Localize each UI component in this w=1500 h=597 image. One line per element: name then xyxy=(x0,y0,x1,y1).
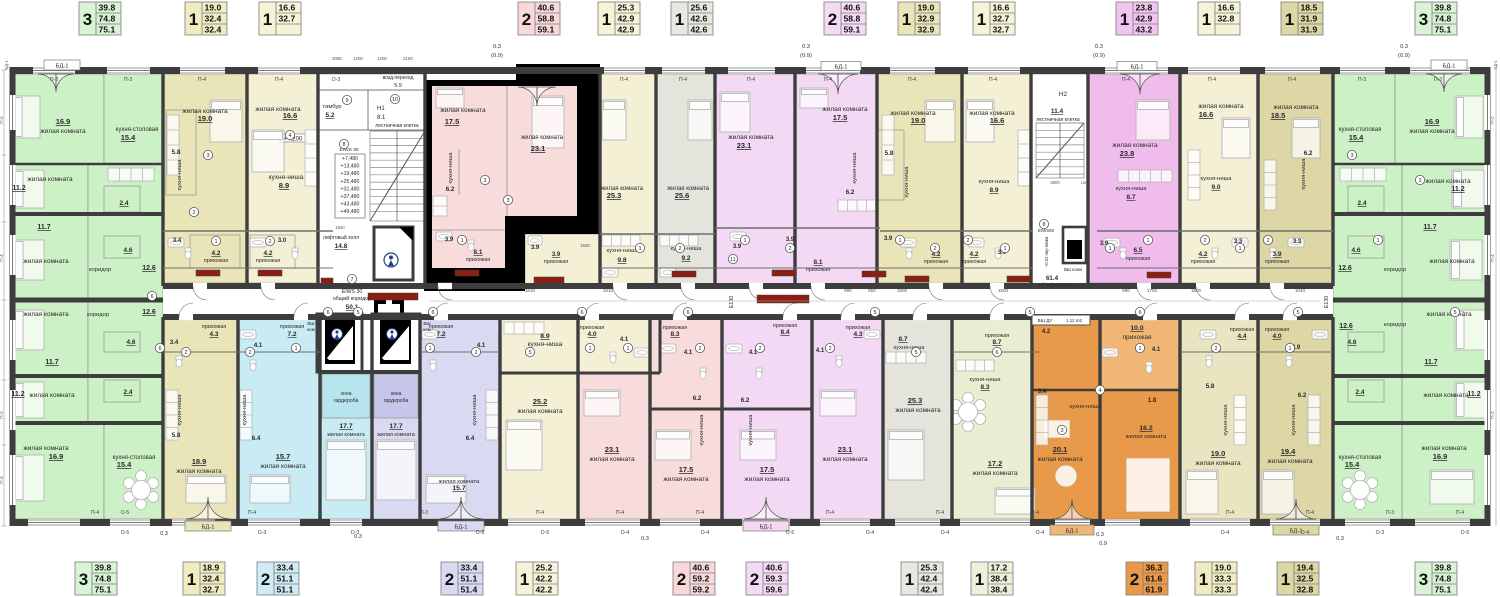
svg-text:32.8: 32.8 xyxy=(1297,585,1314,595)
svg-text:жилая комната: жилая комната xyxy=(260,463,306,470)
svg-text:кухня-ниша: кухня-ниша xyxy=(1301,158,1307,190)
svg-text:О-4: О-4 xyxy=(1301,530,1310,536)
svg-text:прихожая: прихожая xyxy=(1191,259,1216,265)
svg-text:2150: 2150 xyxy=(403,56,413,61)
svg-text:6.2: 6.2 xyxy=(1304,150,1313,157)
svg-text:2.4: 2.4 xyxy=(1355,389,1364,396)
svg-text:15.7: 15.7 xyxy=(276,452,291,461)
svg-text:жилая комната: жилая комната xyxy=(822,456,868,463)
svg-text:П-2: П-2 xyxy=(0,411,4,419)
svg-text:1: 1 xyxy=(1108,246,1111,252)
svg-text:4.6: 4.6 xyxy=(123,247,132,254)
svg-text:1: 1 xyxy=(1146,238,1149,244)
svg-text:2.4: 2.4 xyxy=(119,200,128,207)
svg-text:11.2: 11.2 xyxy=(1467,391,1480,398)
svg-text:3: 3 xyxy=(79,570,88,589)
svg-text:жилая комната: жилая комната xyxy=(29,392,75,399)
svg-text:31.9: 31.9 xyxy=(1301,25,1318,35)
svg-text:59.2: 59.2 xyxy=(693,574,710,584)
svg-text:6.2: 6.2 xyxy=(446,186,455,193)
svg-text:6.2: 6.2 xyxy=(846,189,855,196)
svg-text:П-4: П-4 xyxy=(1490,254,1495,262)
svg-text:жилая комната: жилая комната xyxy=(1426,311,1472,318)
svg-text:3.4: 3.4 xyxy=(173,238,182,244)
svg-text:П-3: П-3 xyxy=(50,77,58,83)
svg-text:П-4: П-4 xyxy=(536,510,544,516)
svg-text:П-3: П-3 xyxy=(1358,77,1366,83)
svg-text:БД-1: БД-1 xyxy=(835,64,848,70)
svg-text:42.6: 42.6 xyxy=(691,14,708,24)
svg-text:75.1: 75.1 xyxy=(1435,585,1452,595)
svg-text:6: 6 xyxy=(150,294,153,300)
svg-text:0.3: 0.3 xyxy=(1400,44,1408,50)
svg-text:32.4: 32.4 xyxy=(205,14,222,24)
svg-text:23.1: 23.1 xyxy=(838,445,853,454)
svg-text:П-4: П-4 xyxy=(989,77,997,83)
svg-text:1: 1 xyxy=(1202,10,1211,29)
svg-text:1: 1 xyxy=(428,346,431,352)
svg-text:кухня-ниша: кухня-ниша xyxy=(242,394,248,426)
svg-text:51.1: 51.1 xyxy=(461,574,478,584)
svg-text:5: 5 xyxy=(914,350,917,356)
svg-text:3.9: 3.9 xyxy=(733,244,742,250)
svg-text:П-4: П-4 xyxy=(1226,510,1234,516)
svg-text:коридор: коридор xyxy=(87,312,109,318)
svg-text:33.4: 33.4 xyxy=(277,563,294,573)
svg-text:6: 6 xyxy=(686,310,689,316)
svg-text:19.4: 19.4 xyxy=(1281,447,1296,456)
svg-text:1040: 1040 xyxy=(1295,288,1306,293)
svg-text:П-4: П-4 xyxy=(248,510,256,516)
svg-text:42.4: 42.4 xyxy=(921,574,938,584)
svg-text:П-3: П-3 xyxy=(1434,77,1442,83)
svg-text:1800: 1800 xyxy=(1191,288,1202,293)
svg-text:8.1: 8.1 xyxy=(813,259,822,266)
svg-text:42.2: 42.2 xyxy=(536,585,553,595)
svg-text:лестничная клетка: лестничная клетка xyxy=(375,123,419,129)
svg-text:16.6: 16.6 xyxy=(993,3,1010,13)
svg-text:14.8: 14.8 xyxy=(335,243,348,250)
svg-text:3: 3 xyxy=(506,198,509,204)
svg-text:1: 1 xyxy=(743,238,746,244)
svg-text:6.2: 6.2 xyxy=(1298,392,1307,399)
svg-text:+19,480: +19,480 xyxy=(341,171,360,177)
svg-text:жилая комната: жилая комната xyxy=(1112,142,1158,149)
svg-text:4.0: 4.0 xyxy=(1272,333,1281,340)
svg-text:3.9: 3.9 xyxy=(552,252,561,258)
svg-text:жилая комната: жилая комната xyxy=(377,432,415,438)
svg-text:6: 6 xyxy=(1138,310,1141,316)
svg-text:прихожая: прихожая xyxy=(256,258,281,264)
svg-text:О-4: О-4 xyxy=(866,530,875,536)
svg-text:2: 2 xyxy=(966,238,969,244)
svg-text:О-4: О-4 xyxy=(621,530,630,536)
svg-text:О-4: О-4 xyxy=(701,530,710,536)
svg-text:1: 1 xyxy=(588,346,591,352)
svg-text:4.6: 4.6 xyxy=(1347,339,1356,346)
svg-text:4.6: 4.6 xyxy=(1351,247,1360,254)
svg-text:П-4: П-4 xyxy=(696,510,704,516)
svg-text:38.4: 38.4 xyxy=(991,574,1008,584)
svg-text:2: 2 xyxy=(1130,570,1139,589)
svg-text:кухня-ниша: кухня-ниша xyxy=(904,166,910,198)
svg-text:23.8: 23.8 xyxy=(1136,3,1153,13)
svg-text:1.12 m2: 1.12 m2 xyxy=(1066,318,1082,323)
svg-text:1: 1 xyxy=(675,10,684,29)
svg-text:кухня-ниша: кухня-ниша xyxy=(748,414,754,446)
svg-text:О-5: О-5 xyxy=(121,510,130,516)
svg-text:О-5: О-5 xyxy=(121,530,130,536)
svg-text:жилая комната: жилая комната xyxy=(667,186,709,192)
svg-text:32.9: 32.9 xyxy=(918,14,935,24)
svg-text:15.4: 15.4 xyxy=(1349,133,1364,142)
svg-text:П-3: П-3 xyxy=(124,77,132,83)
svg-text:П-2: П-2 xyxy=(1490,116,1495,124)
svg-text:5: 5 xyxy=(1028,310,1031,316)
svg-text:850: 850 xyxy=(868,288,876,293)
svg-text:БД-1: БД-1 xyxy=(455,524,468,530)
svg-text:О-4: О-4 xyxy=(1036,530,1045,536)
svg-text:74.8: 74.8 xyxy=(1435,14,1452,24)
svg-text:51.1: 51.1 xyxy=(277,574,294,584)
svg-text:3: 3 xyxy=(1350,153,1353,159)
svg-text:8.9: 8.9 xyxy=(989,187,998,194)
svg-text:БД-1: БД-1 xyxy=(1443,63,1456,69)
svg-text:кухня-ниша: кухня-ниша xyxy=(970,377,1002,383)
svg-text:жилая комната: жилая комната xyxy=(744,476,790,483)
svg-text:32.5: 32.5 xyxy=(1297,574,1314,584)
svg-text:17.2: 17.2 xyxy=(991,563,1008,573)
svg-text:4.1: 4.1 xyxy=(816,348,825,354)
svg-text:59.2: 59.2 xyxy=(693,585,710,595)
svg-text:39.8: 39.8 xyxy=(1435,563,1452,573)
svg-text:1: 1 xyxy=(1238,246,1241,252)
svg-text:+13,480: +13,480 xyxy=(341,164,360,170)
svg-text:жилая комната: жилая комната xyxy=(589,456,635,463)
svg-text:прихожая: прихожая xyxy=(806,267,831,273)
svg-text:51.4: 51.4 xyxy=(461,585,478,595)
svg-text:0.3: 0.3 xyxy=(1336,536,1344,542)
svg-text:кухня-ниша: кухня-ниша xyxy=(177,159,183,191)
svg-text:4.2: 4.2 xyxy=(263,250,272,257)
svg-text:гардероба: гардероба xyxy=(384,398,409,404)
svg-text:жилая комната: жилая комната xyxy=(40,128,86,135)
svg-text:16.9: 16.9 xyxy=(56,117,71,126)
svg-text:61.4: 61.4 xyxy=(1046,275,1059,282)
svg-text:40.6: 40.6 xyxy=(693,563,710,573)
svg-text:3.9: 3.9 xyxy=(531,245,540,251)
svg-text:жилая комната: жилая комната xyxy=(23,445,69,452)
svg-text:лифтовый холл: лифтовый холл xyxy=(323,234,359,241)
svg-text:15.4: 15.4 xyxy=(1345,460,1360,469)
svg-text:БД-1: БД-1 xyxy=(1131,64,1144,70)
svg-text:8.9: 8.9 xyxy=(279,181,289,190)
svg-text:1750: 1750 xyxy=(1147,288,1158,293)
svg-text:74.8: 74.8 xyxy=(1435,574,1452,584)
svg-text:1200: 1200 xyxy=(353,56,363,61)
svg-text:8.3: 8.3 xyxy=(670,331,679,338)
svg-text:2: 2 xyxy=(248,350,251,356)
svg-text:жилая комната: жилая комната xyxy=(601,186,643,192)
svg-text:прихожая: прихожая xyxy=(924,259,949,265)
svg-text:180: 180 xyxy=(1081,180,1088,185)
svg-text:17.5: 17.5 xyxy=(833,113,848,122)
svg-text:7.2: 7.2 xyxy=(287,331,296,338)
svg-text:12.6: 12.6 xyxy=(1339,323,1353,330)
svg-text:6.4: 6.4 xyxy=(252,435,261,442)
svg-text:4.2: 4.2 xyxy=(211,250,220,257)
svg-text:жилая комната: жилая комната xyxy=(521,135,563,141)
svg-text:О-4: О-4 xyxy=(941,530,950,536)
svg-text:16.2: 16.2 xyxy=(1139,425,1152,432)
svg-text:Н1: Н1 xyxy=(377,106,385,112)
svg-text:1: 1 xyxy=(460,238,463,244)
svg-text:жилая комната: жилая комната xyxy=(663,476,709,483)
svg-text:3: 3 xyxy=(206,153,209,159)
svg-text:жилая комната: жилая комната xyxy=(176,468,222,475)
svg-text:прихожая: прихожая xyxy=(280,324,305,330)
svg-text:коридор: коридор xyxy=(1384,322,1406,328)
svg-text:75.1: 75.1 xyxy=(95,585,112,595)
svg-text:3.9: 3.9 xyxy=(884,236,893,242)
svg-text:11: 11 xyxy=(730,257,736,263)
svg-text:0.3: 0.3 xyxy=(493,44,501,50)
svg-text:прихожая: прихожая xyxy=(544,259,569,265)
svg-text:жилая комната: жилая комната xyxy=(1421,445,1467,452)
svg-text:9.4: 9.4 xyxy=(1038,388,1047,395)
svg-text:42.2: 42.2 xyxy=(536,574,553,584)
svg-text:3.0: 3.0 xyxy=(278,238,287,244)
svg-text:25.2: 25.2 xyxy=(536,563,553,573)
svg-text:2600: 2600 xyxy=(1050,180,1060,185)
svg-text:0.3: 0.3 xyxy=(1095,44,1103,50)
svg-text:4: 4 xyxy=(1098,388,1101,394)
svg-text:О-3: О-3 xyxy=(258,530,267,536)
svg-text:О-3: О-3 xyxy=(1376,530,1385,536)
svg-text:8.7: 8.7 xyxy=(992,339,1001,346)
svg-text:кухня-ниша: кухня-ниша xyxy=(177,394,183,426)
svg-text:5.8: 5.8 xyxy=(884,150,893,157)
svg-text:БД-1: БД-1 xyxy=(56,63,69,69)
svg-text:16.9: 16.9 xyxy=(1433,452,1448,461)
svg-text:4.4: 4.4 xyxy=(1237,333,1246,340)
svg-text:18.5: 18.5 xyxy=(1301,3,1318,13)
svg-text:П-4: П-4 xyxy=(679,77,687,83)
svg-text:ВШ: ВШ xyxy=(307,321,314,326)
svg-text:общий коридор: общий коридор xyxy=(333,295,372,302)
svg-text:31.9: 31.9 xyxy=(1301,14,1318,24)
svg-text:2: 2 xyxy=(828,346,831,352)
svg-text:6.2: 6.2 xyxy=(741,397,750,404)
svg-text:П-4: П-4 xyxy=(936,510,944,516)
svg-text:+43,480: +43,480 xyxy=(341,202,360,208)
svg-text:1: 1 xyxy=(638,246,641,252)
svg-text:6.2: 6.2 xyxy=(693,395,702,402)
svg-text:жилая комната: жилая комната xyxy=(1037,456,1083,463)
svg-text:4.1: 4.1 xyxy=(254,343,263,349)
svg-text:прихожая: прихожая xyxy=(962,259,987,265)
svg-text:кухня-ниша: кухня-ниша xyxy=(852,152,858,184)
svg-text:6: 6 xyxy=(158,346,161,352)
svg-text:42.9: 42.9 xyxy=(618,25,635,35)
svg-text:П-3: П-3 xyxy=(420,510,428,516)
svg-text:32.9: 32.9 xyxy=(918,25,935,35)
svg-text:32.4: 32.4 xyxy=(205,25,222,35)
svg-text:П-4: П-4 xyxy=(1208,77,1216,83)
svg-text:прихожая: прихожая xyxy=(466,257,491,263)
svg-text:1: 1 xyxy=(977,10,986,29)
svg-text:17.5: 17.5 xyxy=(445,117,460,126)
svg-text:75.1: 75.1 xyxy=(99,25,116,35)
svg-text:9.0: 9.0 xyxy=(1211,184,1220,191)
svg-text:П-4: П-4 xyxy=(824,77,832,83)
svg-text:3080: 3080 xyxy=(332,56,342,61)
svg-text:кухня-ниша: кухня-ниша xyxy=(448,152,454,184)
svg-text:жилая комната: жилая комната xyxy=(1198,103,1244,110)
svg-text:3.9: 3.9 xyxy=(445,237,454,243)
svg-text:4.1: 4.1 xyxy=(620,337,629,343)
svg-text:1: 1 xyxy=(1199,570,1208,589)
svg-text:1: 1 xyxy=(1138,346,1141,352)
svg-text:40.6: 40.6 xyxy=(844,3,861,13)
svg-text:кухня-ниша: кухня-ниша xyxy=(1291,404,1297,436)
svg-text:11.2: 11.2 xyxy=(12,185,25,192)
svg-text:3.4: 3.4 xyxy=(170,340,179,346)
svg-text:4.3: 4.3 xyxy=(853,331,862,338)
svg-text:П-4: П-4 xyxy=(91,510,99,516)
svg-text:23.8: 23.8 xyxy=(1120,149,1135,158)
svg-text:зона: зона xyxy=(341,391,352,397)
svg-text:0.3: 0.3 xyxy=(641,536,649,542)
svg-text:32.7: 32.7 xyxy=(203,585,220,595)
svg-text:кухня-ниша: кухня-ниша xyxy=(472,394,478,426)
svg-text:3.3: 3.3 xyxy=(1293,239,1302,245)
svg-text:жилая комната: жилая комната xyxy=(1409,128,1455,135)
svg-text:(0.9): (0.9) xyxy=(1398,53,1410,59)
svg-text:2: 2 xyxy=(758,346,761,352)
svg-text:1500: 1500 xyxy=(580,243,590,248)
svg-text:5.9: 5.9 xyxy=(394,83,402,89)
svg-text:33.3: 33.3 xyxy=(1215,585,1232,595)
svg-text:прихожая: прихожая xyxy=(429,324,454,330)
svg-text:общий коридор: общий коридор xyxy=(1039,281,1074,288)
svg-text:кухня-ниша: кухня-ниша xyxy=(1223,404,1229,436)
svg-text:О-5: О-5 xyxy=(476,530,485,536)
svg-text:П-3: П-3 xyxy=(1386,510,1394,516)
svg-text:Е130: Е130 xyxy=(1324,296,1330,309)
svg-text:1: 1 xyxy=(898,238,901,244)
svg-text:8.4: 8.4 xyxy=(780,329,789,336)
svg-text:П-4: П-4 xyxy=(1306,510,1314,516)
svg-text:59.6: 59.6 xyxy=(766,585,783,595)
svg-text:2: 2 xyxy=(1214,346,1217,352)
svg-text:кухня-столовая: кухня-столовая xyxy=(113,455,156,461)
svg-text:25.2: 25.2 xyxy=(533,397,548,406)
svg-text:11.2: 11.2 xyxy=(11,391,24,398)
svg-text:4: 4 xyxy=(288,133,291,139)
svg-text:6: 6 xyxy=(580,310,583,316)
svg-text:кухня-ниша: кухня-ниша xyxy=(607,248,639,254)
svg-text:Н2: Н2 xyxy=(1059,91,1068,98)
svg-text:кухня-ниша: кухня-ниша xyxy=(528,341,563,348)
svg-text:кухня-столовая: кухня-столовая xyxy=(1339,455,1382,461)
svg-text:жилая комната: жилая комната xyxy=(972,470,1018,477)
svg-text:жилая комната: жилая комната xyxy=(439,479,480,485)
svg-text:8.7: 8.7 xyxy=(1126,194,1135,201)
svg-text:П-4: П-4 xyxy=(0,254,4,262)
svg-text:1: 1 xyxy=(902,10,911,29)
svg-text:23.1: 23.1 xyxy=(605,445,620,454)
svg-text:1: 1 xyxy=(1285,10,1294,29)
svg-text:О-4: О-4 xyxy=(1221,530,1230,536)
svg-text:42.9: 42.9 xyxy=(618,14,635,24)
svg-text:ВШ ДУ: ВШ ДУ xyxy=(1038,318,1053,323)
svg-text:+0.02 пер.50мм: +0.02 пер.50мм xyxy=(1044,237,1049,267)
svg-text:32.7: 32.7 xyxy=(993,14,1010,24)
svg-text:19.0: 19.0 xyxy=(1215,563,1232,573)
svg-text:жилая комната: жилая комната xyxy=(728,134,774,141)
svg-text:1800: 1800 xyxy=(897,288,908,293)
svg-text:32.7: 32.7 xyxy=(993,25,1010,35)
svg-text:58.8: 58.8 xyxy=(538,14,555,24)
svg-text:0.9: 0.9 xyxy=(1099,541,1107,547)
svg-text:25.3: 25.3 xyxy=(921,563,938,573)
svg-text:жилая комната: жилая комната xyxy=(822,106,868,113)
svg-text:8.3: 8.3 xyxy=(980,384,989,391)
svg-text:19.0: 19.0 xyxy=(198,114,213,123)
svg-text:кухня-ниша: кухня-ниша xyxy=(1116,186,1148,192)
svg-text:5: 5 xyxy=(1453,310,1456,316)
svg-text:1: 1 xyxy=(626,346,629,352)
svg-text:19.0: 19.0 xyxy=(911,116,926,125)
svg-text:П-2: П-2 xyxy=(0,116,4,124)
svg-text:2: 2 xyxy=(933,246,936,252)
svg-text:39.8: 39.8 xyxy=(99,3,116,13)
svg-text:1: 1 xyxy=(1120,10,1129,29)
svg-text:прихожая: прихожая xyxy=(1265,259,1290,265)
svg-text:П-4: П-4 xyxy=(616,510,624,516)
svg-text:19.0: 19.0 xyxy=(205,3,222,13)
svg-text:6.5: 6.5 xyxy=(1133,247,1142,254)
svg-text:жилая комната: жилая комната xyxy=(1423,392,1469,399)
svg-text:+31,480: +31,480 xyxy=(341,186,360,192)
svg-text:11.7: 11.7 xyxy=(37,224,50,231)
svg-text:1200: 1200 xyxy=(377,56,387,61)
svg-text:1: 1 xyxy=(1376,238,1379,244)
svg-text:жилая комната: жилая комната xyxy=(27,176,73,183)
svg-text:1: 1 xyxy=(189,10,198,29)
svg-text:25.6: 25.6 xyxy=(691,3,708,13)
svg-text:16.6: 16.6 xyxy=(279,3,296,13)
svg-text:18.9: 18.9 xyxy=(192,457,207,466)
svg-text:7: 7 xyxy=(350,277,353,283)
svg-text:П-4: П-4 xyxy=(275,77,283,83)
svg-text:ВШ комн: ВШ комн xyxy=(1064,267,1083,272)
svg-text:61.6: 61.6 xyxy=(1146,574,1163,584)
svg-text:БД-1: БД-1 xyxy=(202,524,215,530)
svg-text:16.6: 16.6 xyxy=(1218,3,1235,13)
svg-text:3: 3 xyxy=(1419,570,1428,589)
svg-text:6.4: 6.4 xyxy=(466,435,475,442)
svg-text:3.9: 3.9 xyxy=(786,237,795,243)
svg-text:5.8: 5.8 xyxy=(1206,383,1215,390)
svg-text:990: 990 xyxy=(844,288,852,293)
svg-text:БД-1: БД-1 xyxy=(4,60,9,70)
svg-text:1810: 1810 xyxy=(525,288,536,293)
svg-text:11.7: 11.7 xyxy=(1424,359,1437,366)
svg-text:59.1: 59.1 xyxy=(538,25,555,35)
svg-text:75.1: 75.1 xyxy=(1435,25,1452,35)
